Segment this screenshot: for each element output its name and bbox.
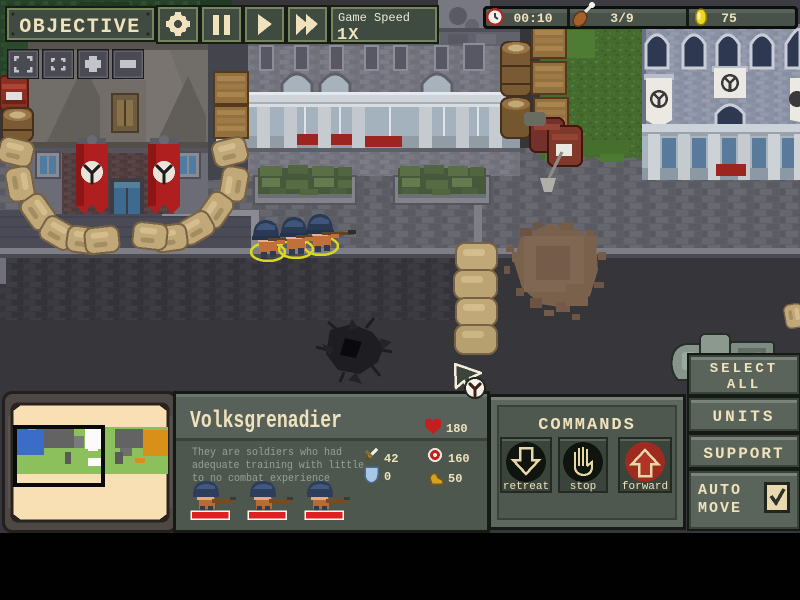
svg-text:stop: stop: [570, 481, 596, 493]
svg-text:adequate training with little: adequate training with little: [192, 460, 364, 472]
svg-text:160: 160: [448, 452, 470, 466]
svg-text:42: 42: [384, 452, 398, 466]
svg-text:50: 50: [448, 472, 462, 486]
svg-text:retreat: retreat: [503, 481, 549, 493]
svg-text:AUTO: AUTO: [698, 482, 742, 499]
svg-text:75: 75: [721, 11, 737, 26]
svg-text:1X: 1X: [337, 26, 359, 45]
svg-text:3/9: 3/9: [610, 11, 634, 26]
svg-text:UNITS: UNITS: [712, 408, 775, 426]
svg-text:ALL: ALL: [727, 377, 761, 393]
svg-text:Game Speed: Game Speed: [338, 11, 410, 25]
svg-text:00:10: 00:10: [513, 11, 552, 26]
svg-text:SELECT: SELECT: [710, 361, 778, 377]
svg-text:They are soldiers who had: They are soldiers who had: [192, 447, 342, 459]
svg-text:COMMANDS: COMMANDS: [538, 416, 636, 435]
svg-text:Volksgrenadier: Volksgrenadier: [190, 408, 342, 435]
svg-text:OBJECTIVE: OBJECTIVE: [19, 16, 141, 39]
svg-text:SUPPORT: SUPPORT: [703, 445, 784, 463]
svg-text:MOVE: MOVE: [698, 500, 742, 517]
svg-text:forward: forward: [622, 481, 668, 493]
svg-text:0: 0: [384, 470, 391, 484]
svg-text:180: 180: [446, 422, 468, 436]
